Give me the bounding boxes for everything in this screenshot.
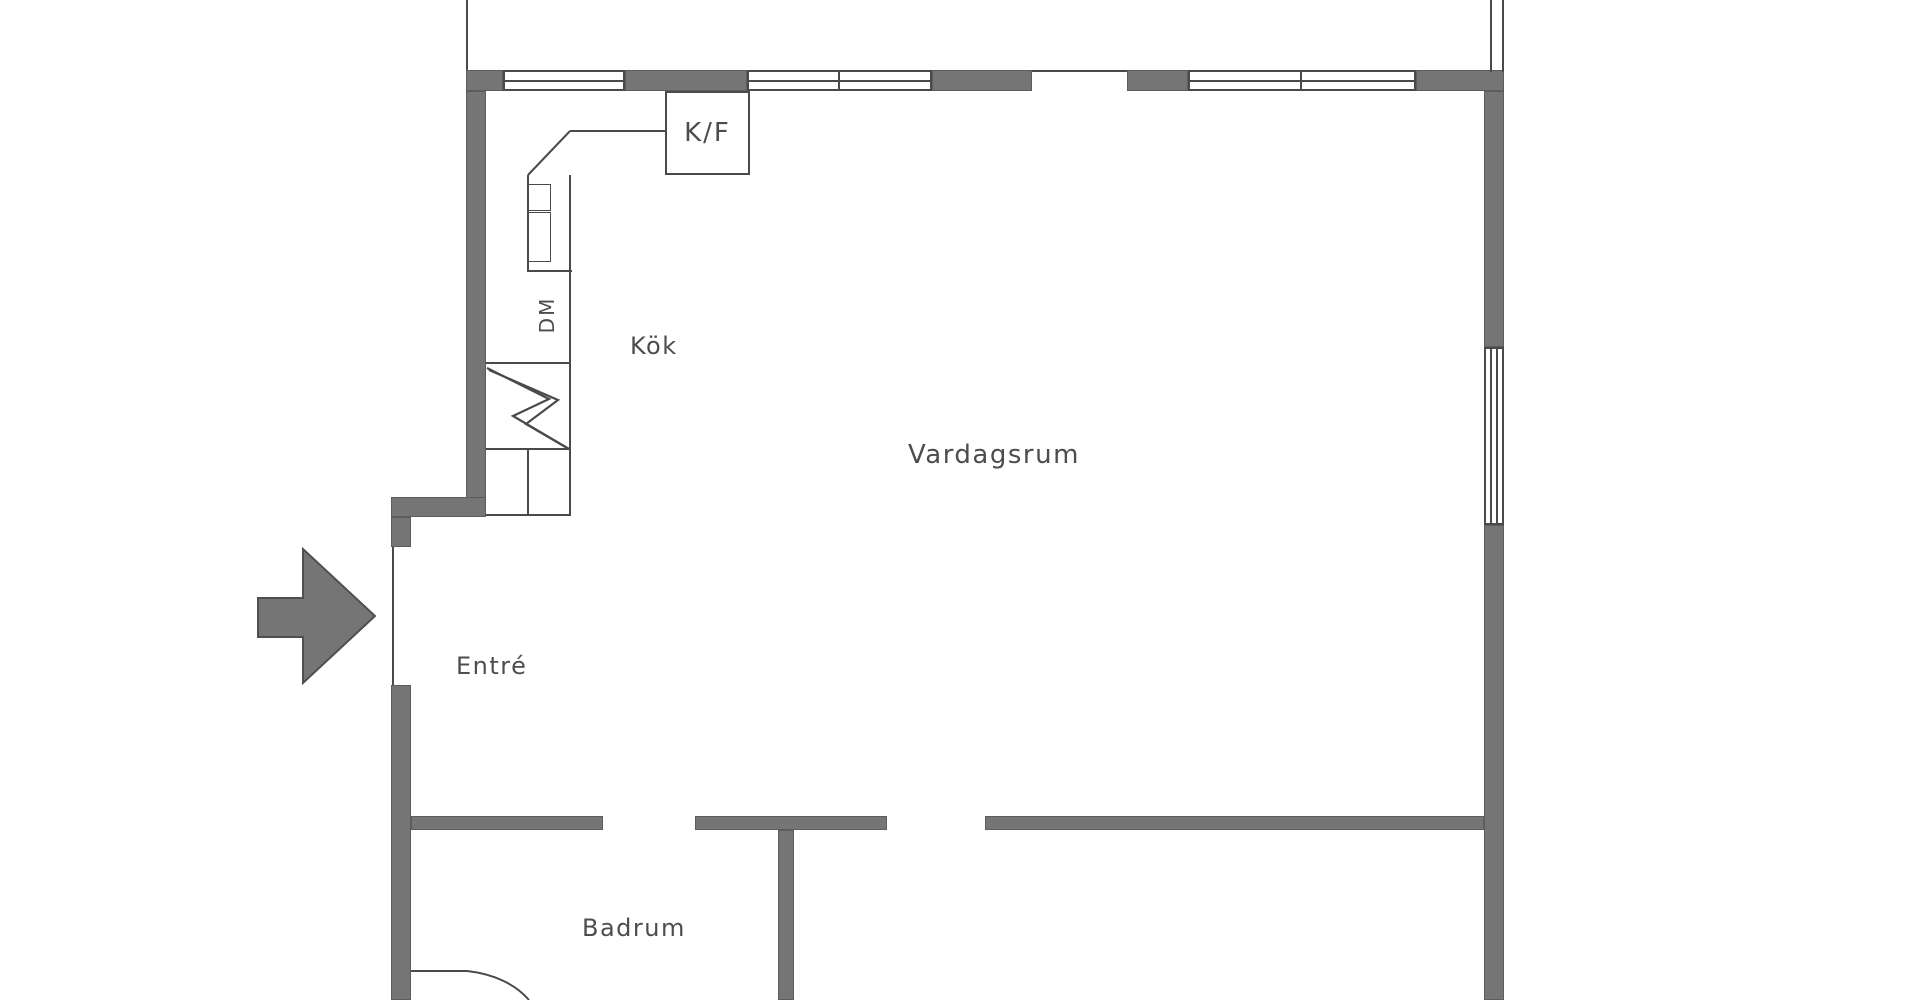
counter-diagonal-corner-line: [528, 131, 570, 175]
window-top-3: [1188, 70, 1416, 91]
window-glass-line: [1190, 80, 1414, 82]
wall-left-stub: [391, 517, 411, 547]
stove-zigzag-symbol: [487, 368, 569, 449]
room-label-kok: Kök: [630, 332, 678, 360]
counter-bottom-line: [486, 514, 571, 516]
wall-edge-line-above-right-outer: [1490, 0, 1492, 72]
room-label-badrum: Badrum: [582, 914, 686, 942]
cabinet-box-small: [528, 184, 551, 211]
counter-front-top-line: [570, 130, 665, 132]
door-swing-arc: [411, 971, 529, 1000]
counter-divider-line-1: [527, 270, 572, 272]
wall-top-right-corner: [1416, 70, 1504, 91]
dishwasher-label-wrap: DM: [517, 290, 577, 340]
dishwasher-label: DM: [535, 297, 559, 334]
wall-interior-badrum-east: [778, 830, 794, 1000]
window-glass-line: [1490, 349, 1492, 523]
cabinet-box-large: [528, 212, 551, 262]
wall-left-jog: [391, 497, 486, 517]
wall-left-upper: [466, 91, 486, 517]
wall-right-upper: [1484, 91, 1504, 347]
wall-top-left-corner: [466, 70, 503, 91]
room-label-entre: Entré: [456, 652, 527, 680]
wall-interior-entre-badrum-right: [695, 816, 887, 830]
wall-top-segment-4: [1127, 70, 1188, 91]
window-glass-line: [1496, 349, 1498, 523]
wall-edge-line-above-left: [466, 0, 468, 70]
window-mullion: [838, 72, 840, 89]
room-label-vardagsrum: Vardagsrum: [908, 440, 1080, 470]
wall-opening-top: [1032, 70, 1127, 91]
floorplan-canvas: K/F DM Kök Vardagsrum Entré Badrum: [0, 0, 1920, 1000]
wall-edge-line-above-right-inner: [1502, 0, 1504, 72]
wall-top-segment-3: [932, 70, 1032, 91]
stove-zigzag-symbol-2: [489, 370, 569, 449]
window-mullion: [1300, 72, 1302, 89]
wall-left-lower: [391, 685, 411, 1000]
sketch-overlay: [0, 0, 1920, 1000]
window-glass-line: [505, 80, 623, 82]
fridge-freezer-label: K/F: [684, 118, 731, 148]
window-right: [1484, 347, 1504, 525]
window-top-2: [747, 70, 932, 91]
fridge-freezer-box: K/F: [665, 91, 750, 175]
wall-interior-entre-badrum-left: [411, 816, 603, 830]
entrance-door-opening-line: [392, 547, 394, 685]
wall-right-lower: [1484, 525, 1504, 1000]
wall-top-segment-2: [625, 70, 747, 91]
entrance-arrow-icon: [258, 549, 375, 683]
counter-divider-line-2: [486, 362, 571, 364]
wall-interior-vardagsrum-south: [985, 816, 1484, 830]
counter-front-line: [569, 175, 571, 516]
cabinet-divider-line: [527, 450, 529, 516]
window-top-1: [503, 70, 625, 91]
